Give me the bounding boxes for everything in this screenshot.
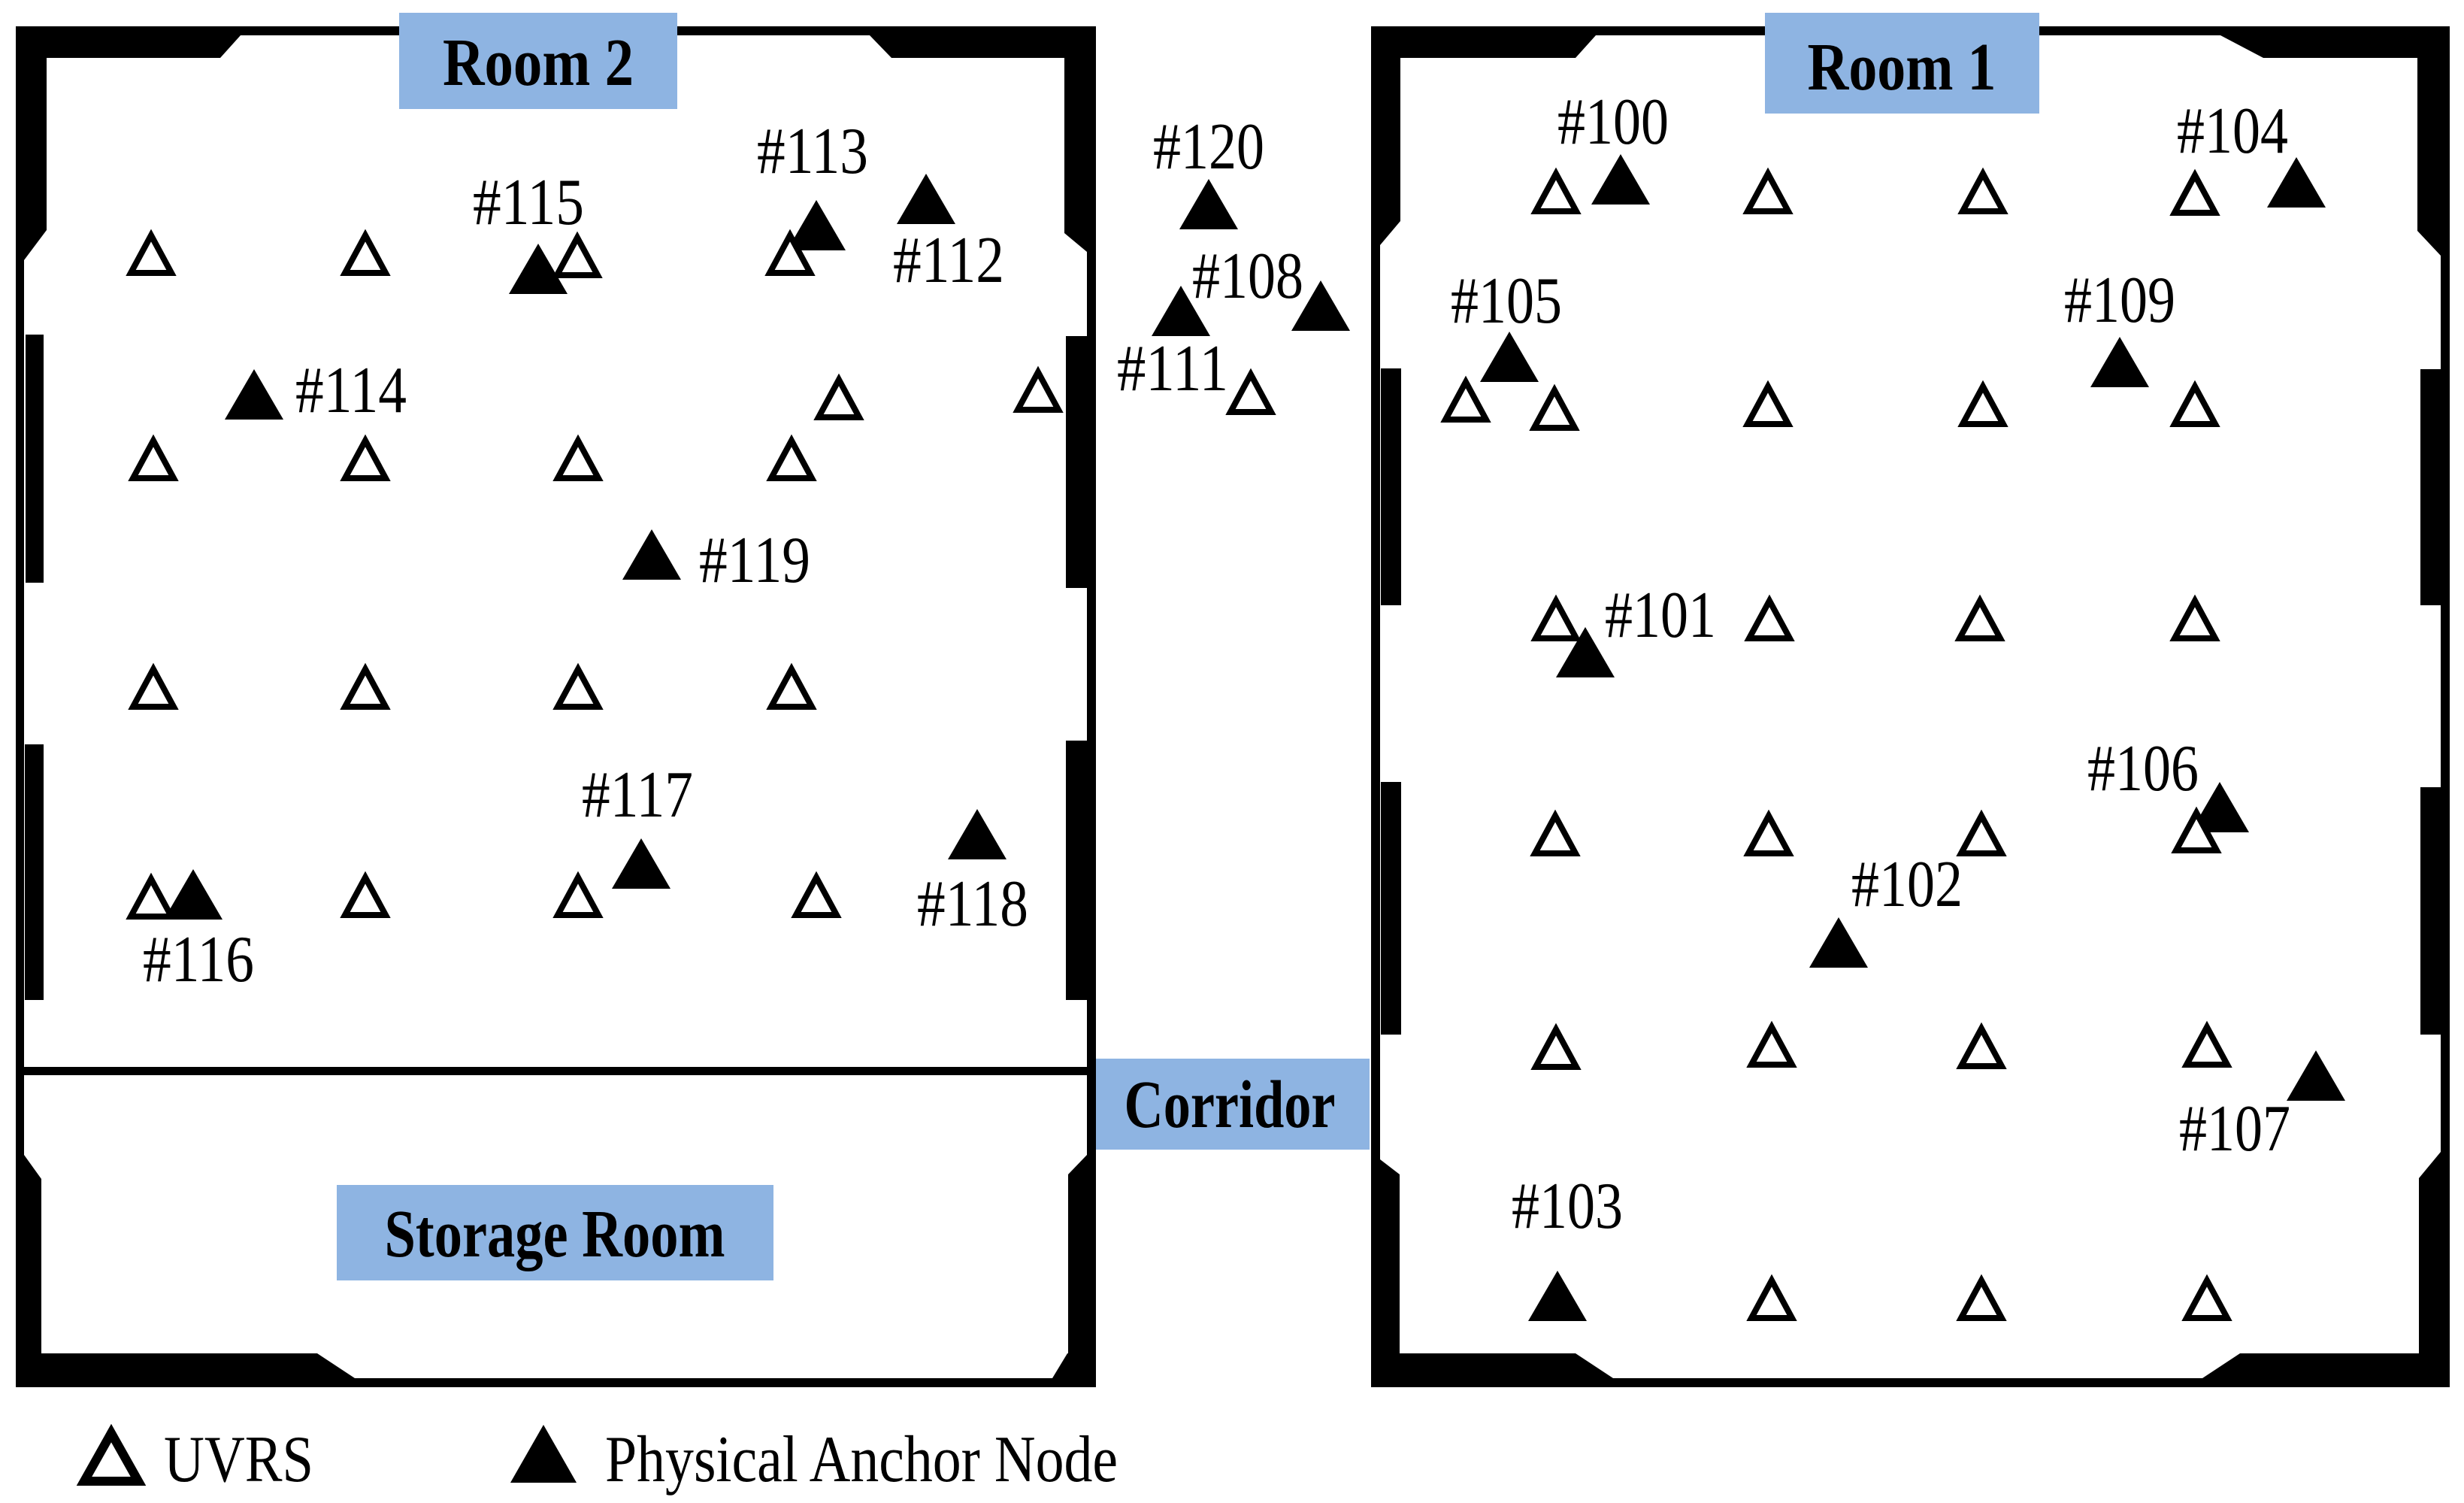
svg-text:#106: #106	[2087, 732, 2199, 805]
svg-text:#117: #117	[582, 759, 693, 832]
svg-text:#102: #102	[1851, 848, 1963, 921]
svg-text:UVRS: UVRS	[164, 1423, 313, 1496]
svg-text:#100: #100	[1557, 86, 1669, 159]
svg-text:Corridor: Corridor	[1125, 1068, 1336, 1142]
svg-text:#118: #118	[917, 868, 1028, 941]
svg-text:#114: #114	[295, 354, 407, 427]
svg-text:#115: #115	[473, 166, 584, 239]
svg-text:#103: #103	[1512, 1170, 1623, 1243]
svg-text:#112: #112	[893, 224, 1004, 297]
svg-text:#109: #109	[2064, 264, 2175, 337]
svg-text:#113: #113	[757, 115, 868, 188]
svg-text:#107: #107	[2179, 1092, 2290, 1165]
svg-text:#104: #104	[2177, 95, 2288, 168]
svg-text:#111: #111	[1117, 332, 1228, 405]
svg-text:Physical Anchor Node: Physical Anchor Node	[605, 1423, 1118, 1496]
svg-text:Room 1: Room 1	[1808, 30, 1996, 105]
svg-text:#116: #116	[143, 923, 254, 996]
svg-text:#120: #120	[1153, 111, 1264, 183]
svg-text:#105: #105	[1451, 265, 1562, 338]
svg-text:#119: #119	[699, 524, 810, 597]
svg-text:#101: #101	[1605, 579, 1716, 652]
svg-text:Room 2: Room 2	[443, 26, 634, 100]
svg-text:#108: #108	[1192, 240, 1303, 313]
svg-text:Storage Room: Storage Room	[385, 1197, 725, 1271]
